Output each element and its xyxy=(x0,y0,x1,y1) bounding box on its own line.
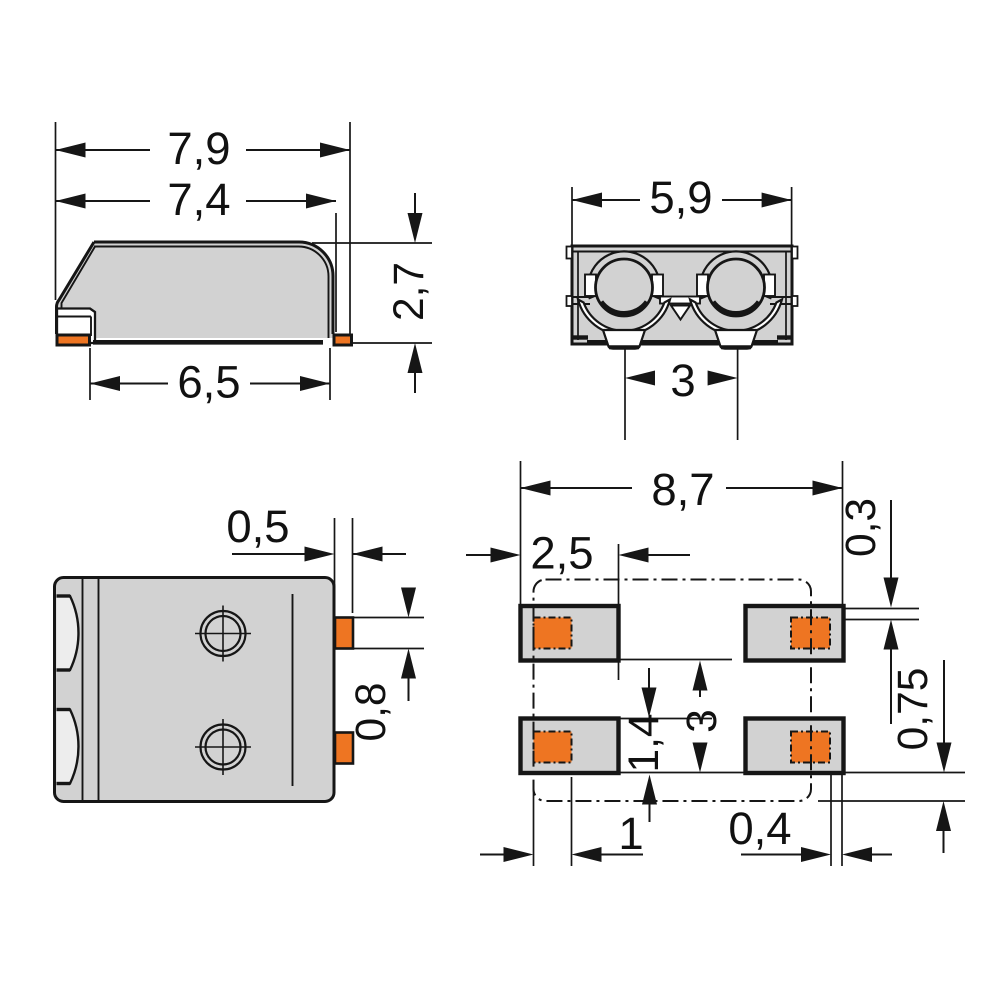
svg-text:3: 3 xyxy=(679,709,726,733)
svg-text:2,7: 2,7 xyxy=(386,262,433,321)
svg-text:1: 1 xyxy=(618,808,643,859)
svg-text:7,9: 7,9 xyxy=(167,123,230,174)
svg-text:6,5: 6,5 xyxy=(177,357,240,408)
svg-text:1,4: 1,4 xyxy=(621,713,668,772)
svg-text:0,75: 0,75 xyxy=(890,668,937,751)
svg-text:3: 3 xyxy=(670,355,695,406)
svg-text:0,4: 0,4 xyxy=(728,803,791,854)
svg-text:0,3: 0,3 xyxy=(838,498,885,557)
svg-text:7,4: 7,4 xyxy=(167,174,230,225)
svg-text:8,7: 8,7 xyxy=(651,464,714,515)
svg-text:5,9: 5,9 xyxy=(649,172,712,223)
svg-text:2,5: 2,5 xyxy=(530,528,593,579)
svg-text:0,5: 0,5 xyxy=(226,501,289,552)
svg-text:0,8: 0,8 xyxy=(348,682,395,741)
